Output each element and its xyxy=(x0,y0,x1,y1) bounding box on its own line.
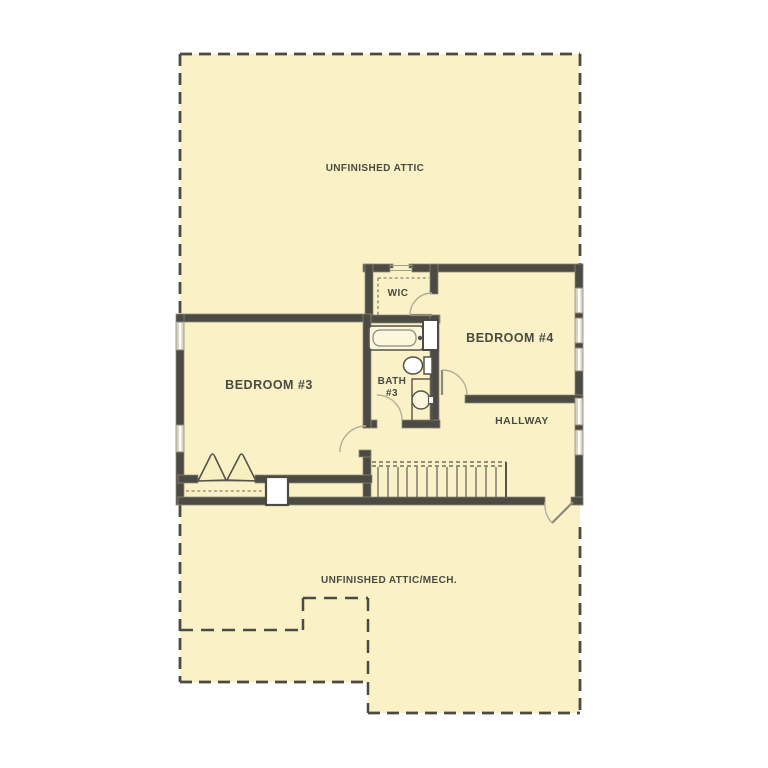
window-bedroom4-right-3 xyxy=(575,348,583,371)
window-bedroom4-right-2 xyxy=(575,318,583,343)
window-bedroom4-right-1 xyxy=(575,288,583,313)
label-unfinished-attic: UNFINISHED ATTIC xyxy=(326,163,425,174)
label-bedroom3: BEDROOM #3 xyxy=(225,378,313,392)
linen-niche xyxy=(423,320,438,350)
label-hallway: HALLWAY xyxy=(495,415,549,427)
floor-plan-page: UNFINISHED ATTIC BEDROOM #3 WIC BATH #3 … xyxy=(0,0,768,768)
label-bath3-line1: BATH xyxy=(378,376,407,387)
bathtub xyxy=(369,326,423,350)
window-hallway-right-1 xyxy=(575,398,583,425)
floor-plan: UNFINISHED ATTIC BEDROOM #3 WIC BATH #3 … xyxy=(0,0,768,768)
label-bath3-line2: #3 xyxy=(386,388,398,399)
window-bedroom3-left-2 xyxy=(176,425,184,452)
window-bedroom3-left-1 xyxy=(176,322,184,350)
toilet xyxy=(404,357,433,374)
label-bedroom4: BEDROOM #4 xyxy=(466,331,554,345)
window-hallway-right-2 xyxy=(575,430,583,455)
chase xyxy=(266,477,288,505)
label-wic: WIC xyxy=(388,288,409,299)
label-unfinished-attic-mech: UNFINISHED ATTIC/MECH. xyxy=(321,575,457,586)
